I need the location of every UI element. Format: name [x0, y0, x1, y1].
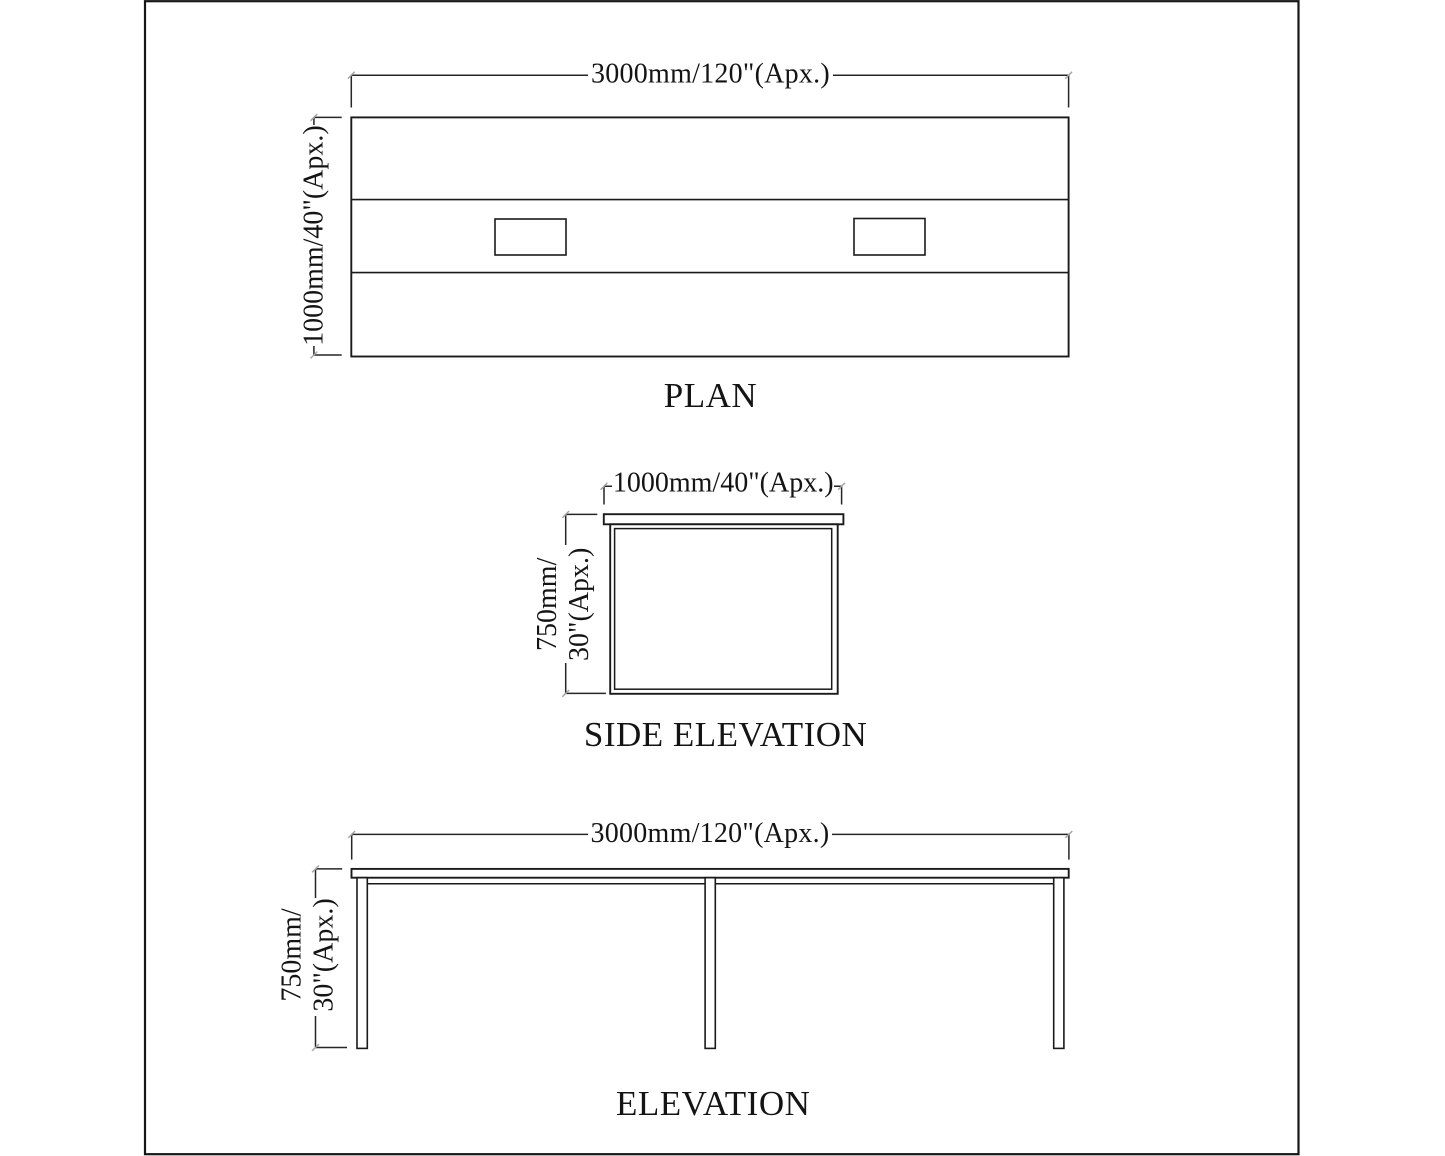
- svg-text:30"(Apx.): 30"(Apx.): [309, 898, 340, 1011]
- svg-text:30"(Apx.): 30"(Apx.): [564, 548, 595, 661]
- svg-text:1000mm/40"(Apx.): 1000mm/40"(Apx.): [613, 468, 834, 499]
- svg-text:750mm/: 750mm/: [532, 557, 563, 651]
- svg-text:PLAN: PLAN: [664, 376, 757, 415]
- svg-text:3000mm/120"(Apx.): 3000mm/120"(Apx.): [591, 818, 830, 849]
- svg-text:750mm/: 750mm/: [277, 908, 308, 1002]
- svg-text:1000mm/40"(Apx.): 1000mm/40"(Apx.): [299, 125, 330, 346]
- svg-text:ELEVATION: ELEVATION: [616, 1084, 810, 1123]
- svg-text:3000mm/120"(Apx.): 3000mm/120"(Apx.): [591, 59, 830, 90]
- svg-text:SIDE ELEVATION: SIDE ELEVATION: [584, 715, 867, 754]
